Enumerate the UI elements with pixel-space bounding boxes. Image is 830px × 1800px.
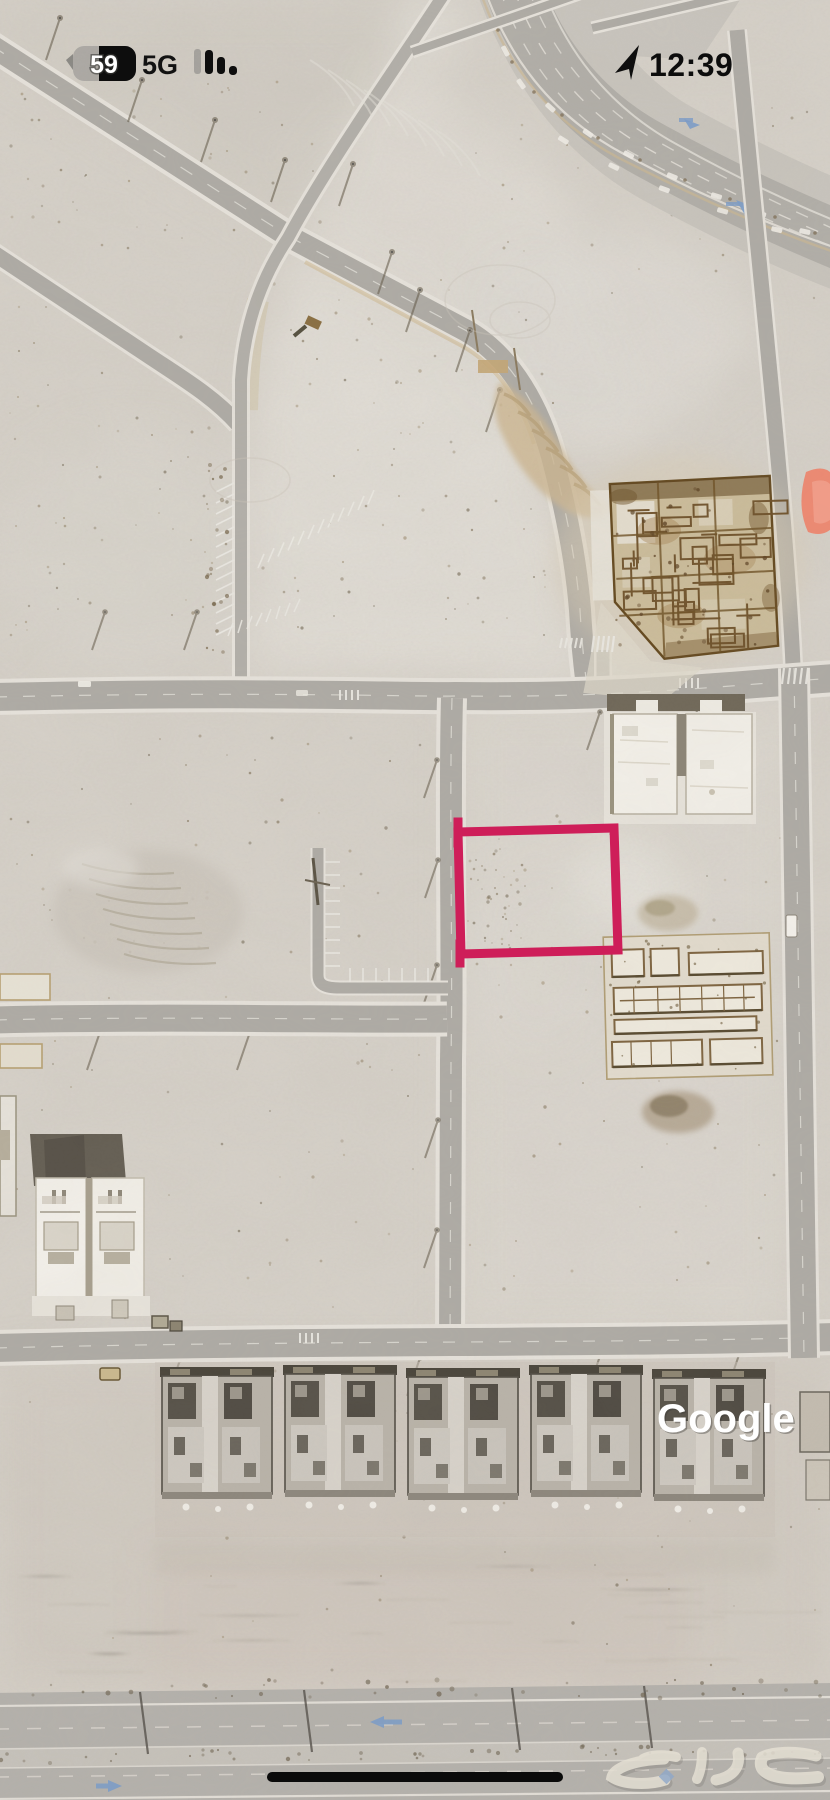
svg-text:59: 59 xyxy=(90,51,118,79)
svg-text:5G: 5G xyxy=(142,50,178,80)
svg-text:12:39: 12:39 xyxy=(649,47,733,83)
svg-text:Google: Google xyxy=(657,1397,795,1441)
